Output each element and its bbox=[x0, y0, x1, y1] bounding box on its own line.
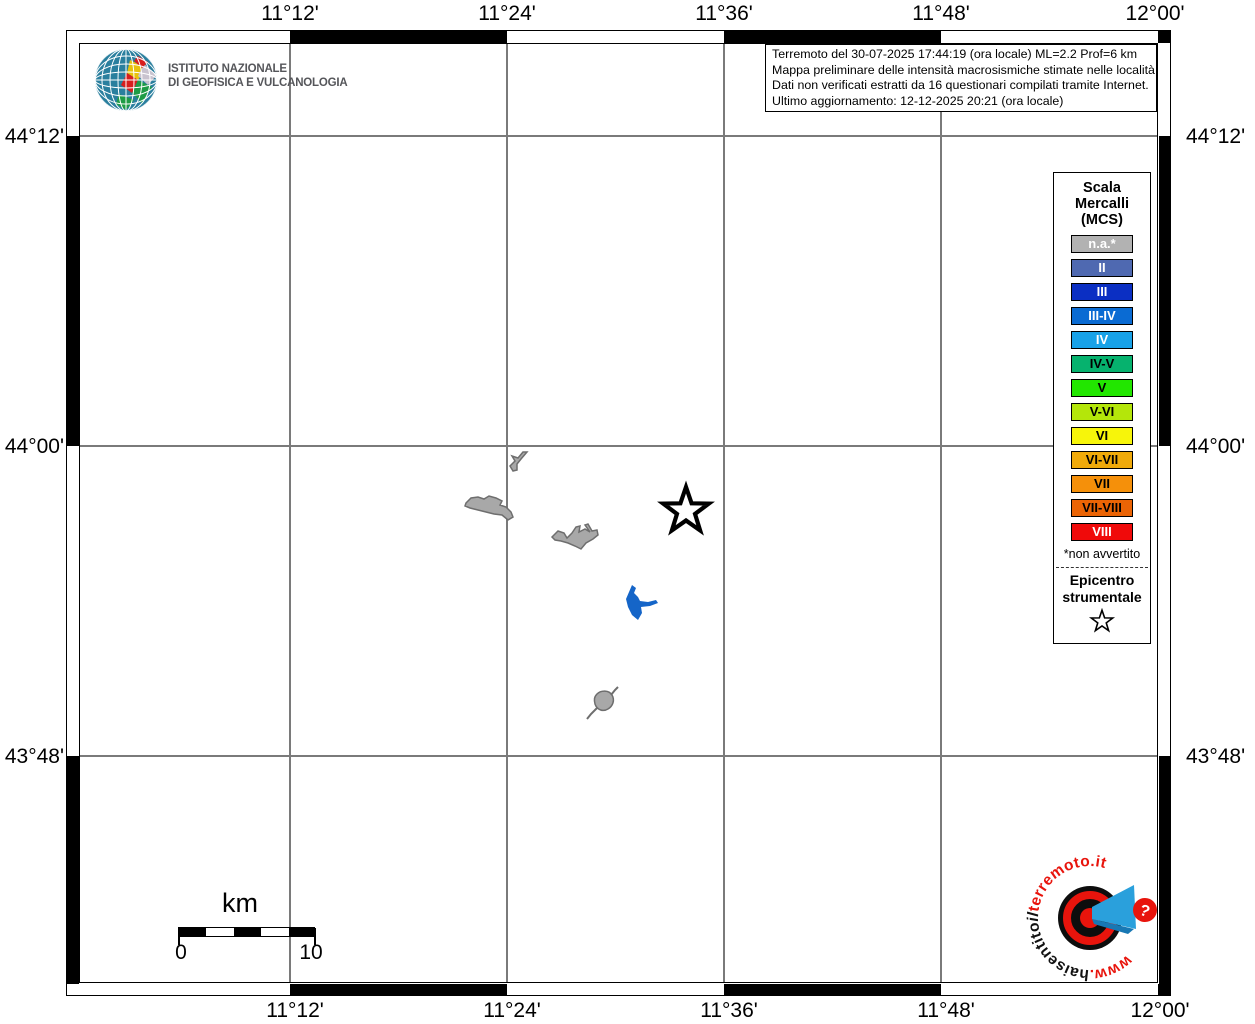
ingv-logo-text-line2: DI GEOFISICA E VULCANOLOGIA bbox=[168, 77, 347, 89]
scale-bar-unit: km bbox=[222, 888, 258, 919]
axis-label-top-3: 11°36' bbox=[679, 2, 769, 26]
legend-item-viii: VIII bbox=[1071, 523, 1133, 541]
scale-bar-start-label: 0 bbox=[156, 941, 206, 965]
legend-item-vi: VI bbox=[1071, 427, 1133, 445]
logo-text-www: www. bbox=[1089, 951, 1136, 983]
axis-label-top-1: 11°12' bbox=[245, 2, 335, 26]
haisentitoilterremoto-logo: ? www.haisentitoilterremoto.it bbox=[1015, 843, 1165, 993]
legend-title-line2: Mercalli bbox=[1054, 196, 1150, 212]
legend-epicenter-label: Epicentro strumentale bbox=[1054, 572, 1150, 605]
axis-label-bottom-5: 12°00' bbox=[1115, 999, 1205, 1023]
macroseismic-map: 11°12' 11°24' 11°36' 11°48' 12°00' 11°12… bbox=[0, 0, 1255, 1024]
legend-item-iii-iv: III-IV bbox=[1071, 307, 1133, 325]
info-line-event: Terremoto del 30-07-2025 17:44:19 (ora l… bbox=[772, 47, 1150, 63]
axis-label-top-2: 11°24' bbox=[462, 2, 552, 26]
axis-label-top-4: 11°48' bbox=[896, 2, 986, 26]
legend-item-na: n.a.* bbox=[1071, 235, 1133, 253]
legend-epicenter-line2: strumentale bbox=[1054, 589, 1150, 606]
legend-item-iii: III bbox=[1071, 283, 1133, 301]
scale-bar bbox=[178, 927, 315, 937]
axis-label-bottom-3: 11°36' bbox=[684, 999, 774, 1023]
legend-title: Scala Mercalli (MCS) bbox=[1054, 180, 1150, 228]
info-line-map: Mappa preliminare delle intensità macros… bbox=[772, 63, 1150, 79]
legend-divider bbox=[1056, 567, 1148, 568]
axis-label-bottom-1: 11°12' bbox=[250, 999, 340, 1023]
axis-label-left-2: 44°00' bbox=[0, 435, 64, 459]
info-line-data: Dati non verificati estratti da 16 quest… bbox=[772, 78, 1150, 94]
info-line-update: Ultimo aggiornamento: 12-12-2025 20:21 (… bbox=[772, 94, 1150, 110]
map-frame-inner bbox=[79, 43, 1158, 983]
earthquake-info-box: Terremoto del 30-07-2025 17:44:19 (ora l… bbox=[765, 44, 1157, 112]
logo-text-il: il bbox=[1025, 911, 1042, 922]
legend-item-iv-v: IV-V bbox=[1071, 355, 1133, 373]
legend-title-line3: (MCS) bbox=[1054, 212, 1150, 228]
scale-bar-segment bbox=[234, 928, 261, 936]
legend-title-line1: Scala bbox=[1054, 180, 1150, 196]
axis-label-right-3: 43°48' bbox=[1186, 745, 1245, 769]
scale-bar-segment bbox=[179, 928, 206, 936]
legend-item-vi-vii: VI-VII bbox=[1071, 451, 1133, 469]
legend-epicenter-line1: Epicentro bbox=[1054, 572, 1150, 589]
axis-label-left-3: 43°48' bbox=[0, 745, 64, 769]
axis-label-top-5: 12°00' bbox=[1110, 2, 1200, 26]
axis-label-bottom-2: 11°24' bbox=[467, 999, 557, 1023]
axis-label-right-2: 44°00' bbox=[1186, 435, 1245, 459]
legend-footnote: *non avvertito bbox=[1054, 547, 1150, 561]
legend-item-vii: VII bbox=[1071, 475, 1133, 493]
axis-label-bottom-4: 11°48' bbox=[901, 999, 991, 1023]
legend-item-iv: IV bbox=[1071, 331, 1133, 349]
legend-items: n.a.* II III III-IV IV IV-V V V-VI VI VI… bbox=[1054, 235, 1150, 541]
legend-item-v-vi: V-VI bbox=[1071, 403, 1133, 421]
legend-item-vii-viii: VII-VIII bbox=[1071, 499, 1133, 517]
intensity-legend: Scala Mercalli (MCS) n.a.* II III III-IV… bbox=[1053, 172, 1151, 644]
axis-label-right-1: 44°12' bbox=[1186, 125, 1245, 149]
scale-bar-segment bbox=[289, 928, 316, 936]
legend-item-v: V bbox=[1071, 379, 1133, 397]
legend-item-ii: II bbox=[1071, 259, 1133, 277]
ingv-logo-text-line1: ISTITUTO NAZIONALE bbox=[168, 63, 287, 75]
scale-bar-end-label: 10 bbox=[286, 941, 336, 965]
ingv-globe-logo bbox=[94, 48, 158, 112]
axis-label-left-1: 44°12' bbox=[0, 125, 64, 149]
legend-epicenter-star-icon bbox=[1087, 608, 1117, 634]
